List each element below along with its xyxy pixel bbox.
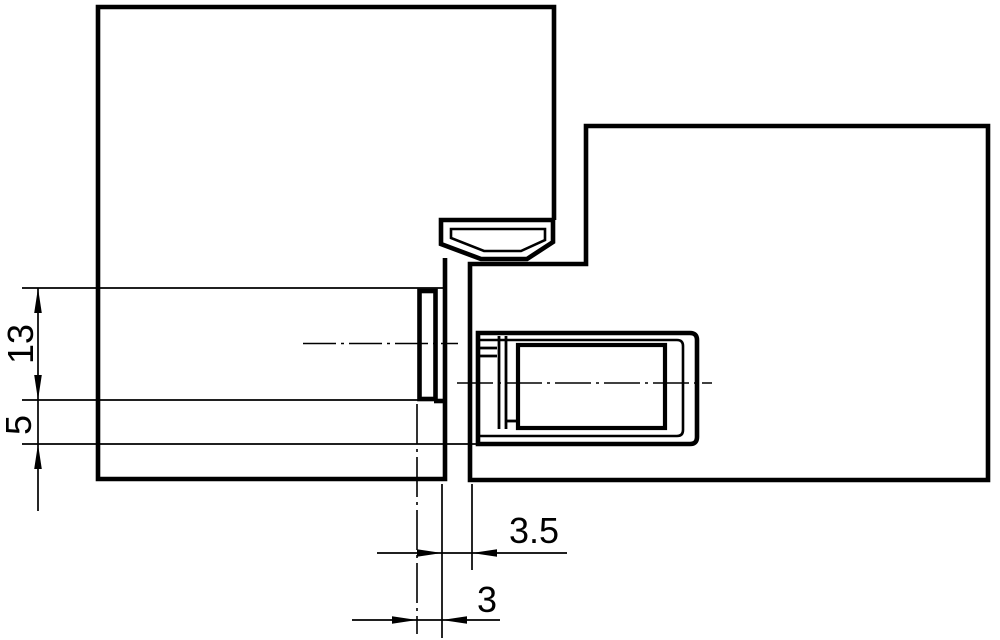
dim-label-13: 13 (0, 324, 41, 364)
dim-label-3-5: 3.5 (509, 510, 559, 551)
arrow-3-left (392, 616, 417, 624)
dim-label-5: 5 (0, 415, 39, 435)
hinge-body-cavity (518, 345, 665, 428)
hinge-leaf (420, 291, 436, 399)
arrow-13-top (34, 288, 42, 313)
arrow-3-5-left (417, 549, 442, 557)
hinge-section-drawing: 13 5 3.5 3 (0, 0, 1000, 640)
arrow-5-bottom (34, 444, 42, 469)
arrow-3-right (442, 616, 467, 624)
drawing-canvas: 13 5 3.5 3 (0, 0, 1000, 640)
arrow-3-5-right (472, 549, 497, 557)
dim-label-3: 3 (477, 579, 497, 620)
arrow-13-bottom (34, 375, 42, 400)
